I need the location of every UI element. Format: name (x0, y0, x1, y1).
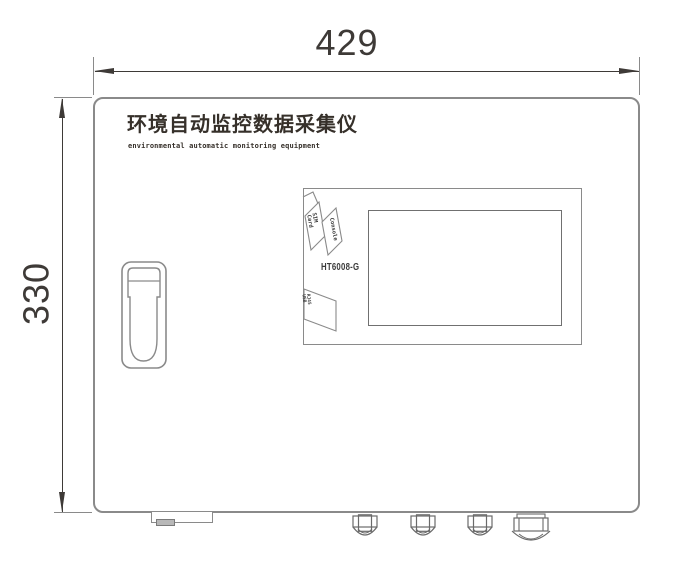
mounting-tab-insert (156, 519, 175, 526)
cable-gland-large (510, 513, 552, 547)
technical-drawing: 429 330 环境自动监控数据采集仪 environmental automa… (0, 0, 692, 565)
extension-line-bottom (54, 512, 92, 513)
cable-gland-1 (351, 514, 379, 542)
dimension-arrow-up-icon (59, 98, 65, 118)
display-screen (368, 210, 562, 326)
height-dimension-line (62, 99, 63, 512)
model-number: HT6008-G (321, 262, 359, 273)
extension-line-top (54, 97, 92, 98)
device-title-english: environmental automatic monitoring equip… (128, 142, 320, 150)
extension-line-right (639, 57, 640, 95)
device-title-chinese: 环境自动监控数据采集仪 (127, 108, 358, 137)
rj45-usb-slot-label: RJ45USB (301, 294, 313, 306)
width-dimension-label: 429 (297, 22, 397, 64)
dimension-arrow-right-icon (619, 68, 639, 74)
width-dimension-line (95, 71, 639, 72)
height-dimension-label: 330 (16, 244, 53, 344)
dimension-arrow-down-icon (59, 492, 65, 512)
dimension-arrow-left-icon (94, 68, 114, 74)
door-handle (119, 259, 169, 371)
cable-gland-2 (409, 514, 437, 542)
cable-gland-3 (466, 514, 494, 542)
extension-line-left (93, 57, 94, 95)
